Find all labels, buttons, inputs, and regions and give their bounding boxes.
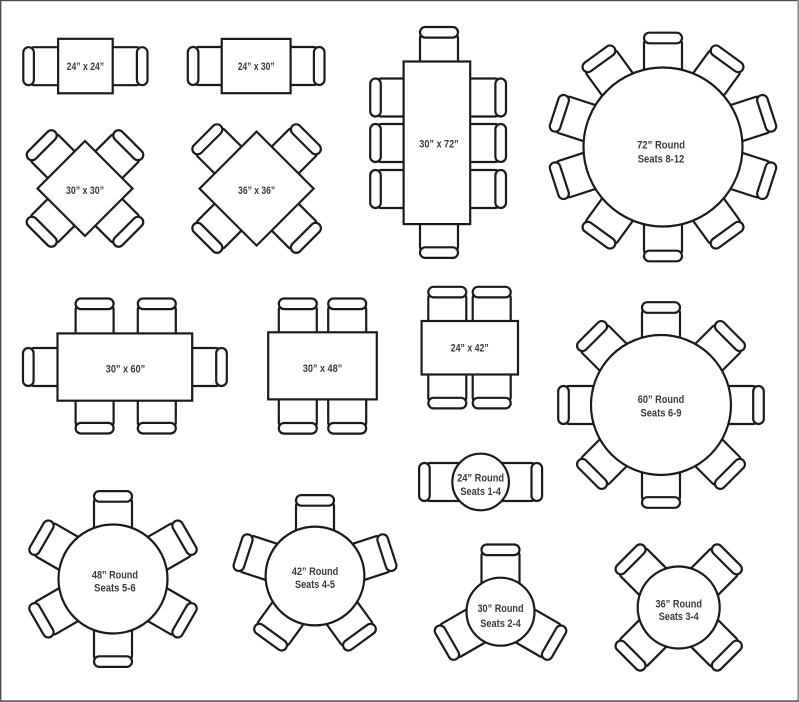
svg-text:42” Round: 42” Round — [292, 566, 339, 578]
svg-text:60” Round: 60” Round — [638, 394, 684, 406]
svg-text:72” Round: 72” Round — [637, 140, 685, 152]
svg-text:24” x 30”: 24” x 30” — [238, 61, 275, 73]
svg-text:24” x 42”: 24” x 42” — [451, 343, 489, 355]
svg-text:Seats 8-12: Seats 8-12 — [638, 153, 685, 165]
svg-text:30” x 48”: 30” x 48” — [303, 363, 343, 375]
svg-text:Seats 1-4: Seats 1-4 — [460, 486, 501, 498]
svg-text:30” x 30”: 30” x 30” — [66, 185, 104, 197]
svg-text:36” x 36”: 36” x 36” — [238, 185, 275, 197]
svg-text:Seats 5-6: Seats 5-6 — [94, 582, 136, 594]
svg-text:24” Round: 24” Round — [457, 472, 504, 484]
svg-text:24” x 24”: 24” x 24” — [67, 61, 105, 73]
svg-text:36” Round: 36” Round — [655, 599, 702, 611]
svg-text:Seats 2-4: Seats 2-4 — [480, 618, 521, 630]
svg-text:Seats 6-9: Seats 6-9 — [641, 407, 682, 419]
svg-text:30” Round: 30” Round — [478, 603, 524, 615]
svg-text:48” Round: 48” Round — [92, 570, 138, 582]
svg-text:Seats 4-5: Seats 4-5 — [295, 579, 336, 591]
svg-text:Seats 3-4: Seats 3-4 — [659, 611, 700, 623]
svg-text:30” x 60”: 30” x 60” — [106, 364, 146, 376]
svg-text:30” x 72”: 30” x 72” — [419, 139, 459, 151]
